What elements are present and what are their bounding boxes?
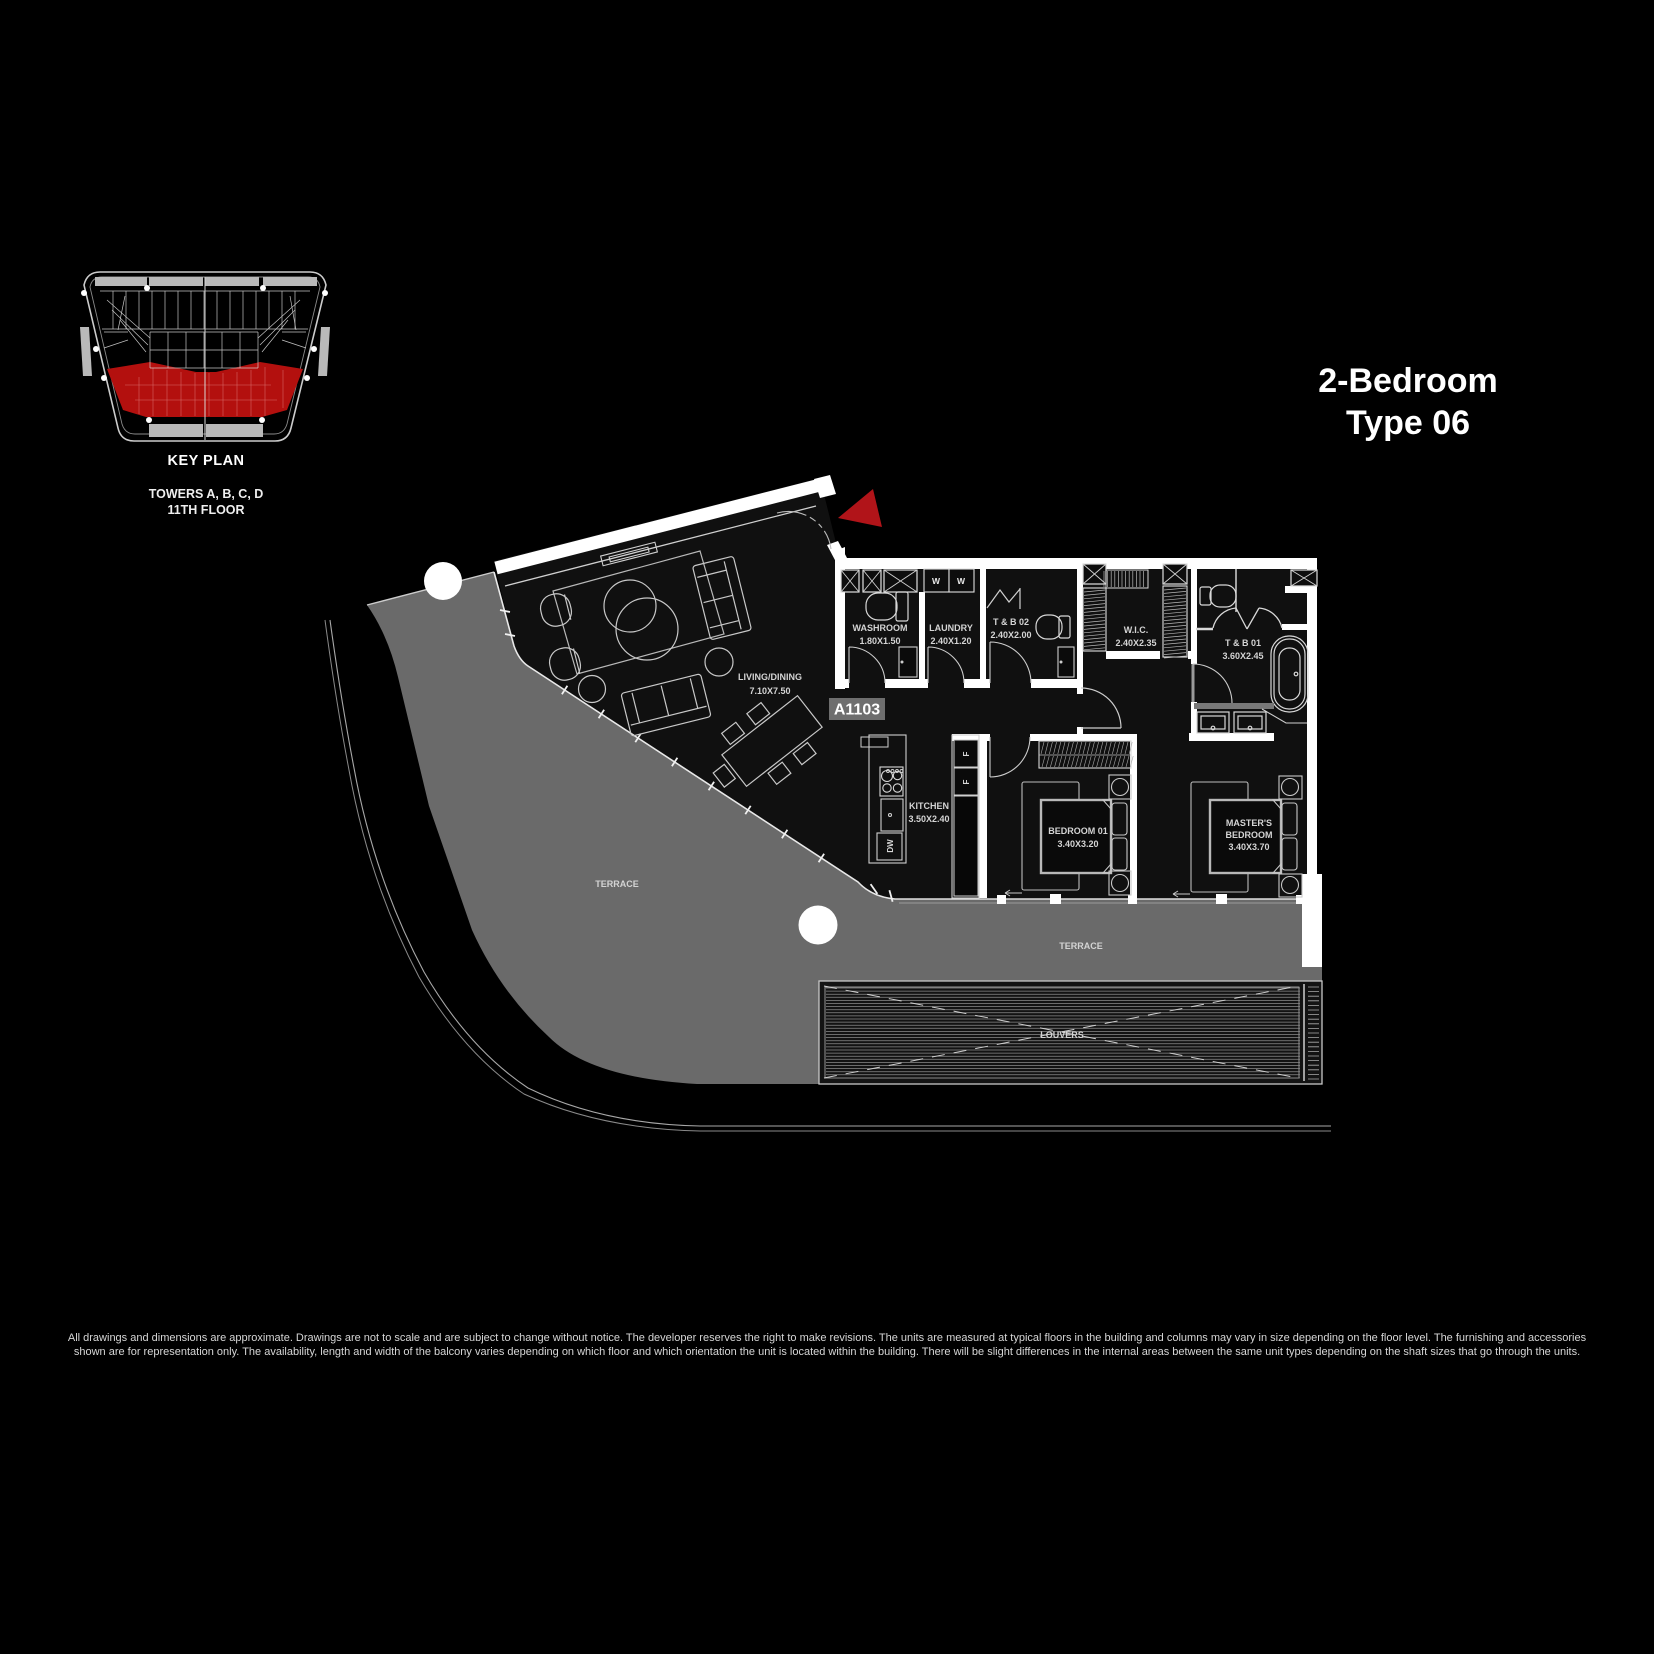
svg-text:3.40X3.70: 3.40X3.70: [1228, 842, 1269, 852]
svg-text:DW: DW: [886, 839, 895, 853]
svg-text:MASTER'S: MASTER'S: [1226, 818, 1272, 828]
svg-text:Type 06: Type 06: [1346, 404, 1470, 442]
svg-text:TOWERS A, B, C, D: TOWERS A, B, C, D: [149, 487, 264, 501]
svg-text:KEY PLAN: KEY PLAN: [167, 453, 244, 469]
svg-text:WASHROOM: WASHROOM: [853, 623, 908, 633]
svg-text:3.50X2.40: 3.50X2.40: [908, 814, 949, 824]
svg-text:All drawings and dimensions ar: All drawings and dimensions are approxim…: [68, 1332, 1587, 1344]
svg-text:LIVING/DINING: LIVING/DINING: [738, 672, 802, 682]
svg-text:3.40X3.20: 3.40X3.20: [1057, 839, 1098, 849]
svg-text:TERRACE: TERRACE: [595, 879, 639, 889]
svg-text:1.80X1.50: 1.80X1.50: [859, 636, 900, 646]
svg-text:W.I.C.: W.I.C.: [1124, 625, 1149, 635]
svg-text:2-Bedroom: 2-Bedroom: [1318, 362, 1497, 400]
svg-text:LOUVERS: LOUVERS: [1040, 1030, 1084, 1040]
svg-text:TERRACE: TERRACE: [1059, 941, 1103, 951]
svg-text:T & B 01: T & B 01: [1225, 638, 1261, 648]
svg-text:KITCHEN: KITCHEN: [909, 801, 949, 811]
svg-text:F: F: [962, 779, 971, 784]
svg-text:W: W: [932, 576, 941, 586]
svg-text:LAUNDRY: LAUNDRY: [929, 623, 973, 633]
svg-text:11TH FLOOR: 11TH FLOOR: [167, 503, 244, 517]
svg-text:2.40X1.20: 2.40X1.20: [930, 636, 971, 646]
svg-text:T & B 02: T & B 02: [993, 617, 1029, 627]
svg-text:shown are for representation o: shown are for representation only. The a…: [74, 1346, 1580, 1358]
svg-text:3.60X2.45: 3.60X2.45: [1222, 651, 1263, 661]
svg-text:2.40X2.00: 2.40X2.00: [990, 630, 1031, 640]
svg-text:BEDROOM 01: BEDROOM 01: [1048, 826, 1108, 836]
svg-text:A1103: A1103: [834, 702, 880, 719]
svg-text:BEDROOM: BEDROOM: [1226, 830, 1273, 840]
svg-text:2.40X2.35: 2.40X2.35: [1115, 638, 1156, 648]
svg-text:W: W: [957, 576, 966, 586]
svg-text:7.10X7.50: 7.10X7.50: [749, 686, 790, 696]
svg-text:F: F: [962, 751, 971, 756]
